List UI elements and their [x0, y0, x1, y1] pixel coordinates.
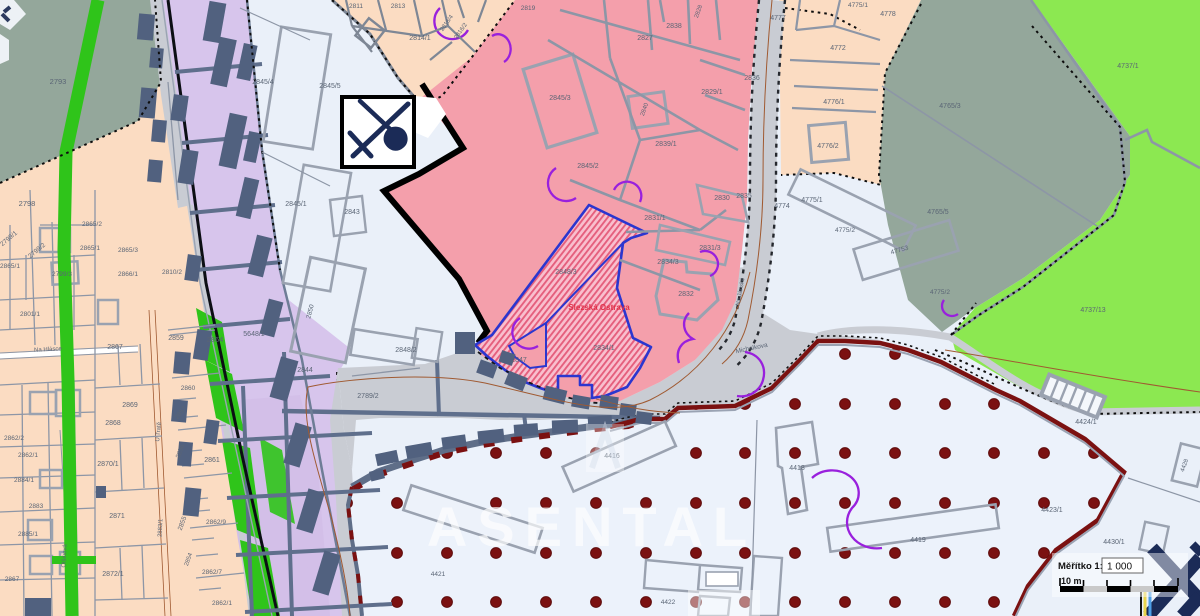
svg-text:2834/3: 2834/3 — [657, 259, 679, 266]
svg-text:2847: 2847 — [511, 357, 527, 364]
svg-text:2799/3: 2799/3 — [52, 271, 72, 278]
svg-text:2862/1: 2862/1 — [212, 600, 232, 607]
svg-text:5648/1: 5648/1 — [243, 331, 265, 338]
svg-text:4765/3: 4765/3 — [939, 103, 961, 110]
svg-text:Slezská Ostrava: Slezská Ostrava — [568, 303, 630, 312]
svg-text:4765/5: 4765/5 — [927, 209, 949, 216]
svg-text:ASENTAL: ASENTAL — [427, 495, 757, 558]
svg-text:2813: 2813 — [391, 3, 406, 10]
svg-text:2843: 2843 — [344, 209, 360, 216]
svg-text:2819: 2819 — [521, 5, 536, 12]
svg-text:4778: 4778 — [880, 11, 896, 18]
svg-text:2845/2: 2845/2 — [577, 163, 599, 170]
svg-text:4430/1: 4430/1 — [1103, 539, 1125, 546]
svg-text:2831/1: 2831/1 — [644, 215, 666, 222]
svg-text:4424/1: 4424/1 — [1075, 419, 1097, 426]
svg-text:4777: 4777 — [770, 15, 786, 22]
svg-text:2845/3: 2845/3 — [549, 95, 571, 102]
svg-text:2867: 2867 — [5, 576, 20, 583]
svg-text:Olšinová: Olšinová — [61, 543, 68, 567]
svg-text:2860: 2860 — [181, 385, 196, 392]
svg-text:2827: 2827 — [637, 35, 653, 42]
svg-text:2864: 2864 — [207, 335, 224, 344]
svg-text:2872/1: 2872/1 — [102, 571, 124, 578]
svg-text:2883/1: 2883/1 — [158, 518, 165, 537]
svg-text:2883: 2883 — [29, 503, 44, 510]
svg-text:2844: 2844 — [297, 367, 313, 374]
svg-text:2814/1: 2814/1 — [409, 35, 431, 42]
svg-text:2845/5: 2845/5 — [319, 83, 341, 90]
svg-text:2848/2: 2848/2 — [395, 347, 417, 354]
svg-text:2836: 2836 — [744, 75, 760, 82]
svg-text:2870/1: 2870/1 — [97, 461, 119, 468]
svg-text:2862/7: 2862/7 — [202, 569, 222, 576]
svg-text:2862/9: 2862/9 — [206, 519, 226, 526]
svg-text:2793: 2793 — [50, 77, 67, 86]
svg-text:2845/4: 2845/4 — [252, 79, 274, 86]
svg-text:2865/1: 2865/1 — [0, 263, 20, 270]
svg-text:4737/13: 4737/13 — [1080, 307, 1105, 314]
svg-text:2789/2: 2789/2 — [357, 393, 379, 400]
svg-text:4737/1: 4737/1 — [1117, 63, 1139, 70]
svg-text:2865/1: 2865/1 — [80, 245, 100, 252]
svg-text:2798: 2798 — [19, 199, 36, 208]
svg-text:2861: 2861 — [204, 457, 220, 464]
svg-text:2871: 2871 — [109, 513, 125, 520]
svg-text:2831/3: 2831/3 — [699, 245, 721, 252]
svg-text:2829/1: 2829/1 — [701, 89, 723, 96]
svg-text:Měřítko 1:: Měřítko 1: — [1058, 561, 1103, 572]
svg-text:2866/1: 2866/1 — [118, 271, 138, 278]
svg-text:4421: 4421 — [431, 571, 446, 578]
svg-text:2845/1: 2845/1 — [285, 201, 307, 208]
svg-text:2884/1: 2884/1 — [14, 477, 34, 484]
svg-text:2859: 2859 — [168, 335, 184, 342]
svg-text:4775/2: 4775/2 — [930, 289, 950, 296]
svg-text:2830: 2830 — [714, 195, 730, 202]
svg-text:4419: 4419 — [910, 537, 926, 544]
svg-text:4776/2: 4776/2 — [817, 143, 839, 150]
svg-text:2834/1: 2834/1 — [593, 345, 615, 352]
svg-text:4774: 4774 — [774, 203, 790, 210]
svg-text:4775/2: 4775/2 — [835, 227, 855, 234]
svg-text:2869: 2869 — [122, 402, 138, 409]
svg-text:2810/2: 2810/2 — [162, 269, 182, 276]
svg-text:2868: 2868 — [105, 420, 121, 427]
svg-text:4772: 4772 — [830, 45, 846, 52]
svg-text:4418: 4418 — [789, 465, 805, 472]
svg-text:2867: 2867 — [107, 344, 123, 351]
svg-text:2832: 2832 — [678, 291, 694, 298]
svg-text:2862/2: 2862/2 — [4, 435, 24, 442]
svg-text:2811: 2811 — [349, 3, 363, 10]
svg-text:2838: 2838 — [666, 23, 682, 30]
svg-text:2801/1: 2801/1 — [20, 311, 40, 318]
svg-text:2839/1: 2839/1 — [655, 141, 677, 148]
svg-text:4775/1: 4775/1 — [848, 2, 868, 9]
svg-text:4422: 4422 — [661, 599, 676, 606]
svg-text:4775/1: 4775/1 — [801, 197, 823, 204]
svg-text:1 000: 1 000 — [1107, 562, 1132, 573]
svg-text:4776/1: 4776/1 — [823, 99, 845, 106]
svg-text:10 m: 10 m — [1061, 576, 1082, 586]
svg-text:2865/2: 2865/2 — [82, 221, 102, 228]
svg-text:2862/1: 2862/1 — [18, 452, 38, 459]
svg-text:4423/1: 4423/1 — [1041, 507, 1063, 514]
svg-text:2848/3: 2848/3 — [555, 269, 577, 276]
svg-text:2835: 2835 — [736, 193, 752, 200]
svg-text:2885/1: 2885/1 — [18, 531, 38, 538]
svg-text:2865/3: 2865/3 — [118, 247, 138, 254]
